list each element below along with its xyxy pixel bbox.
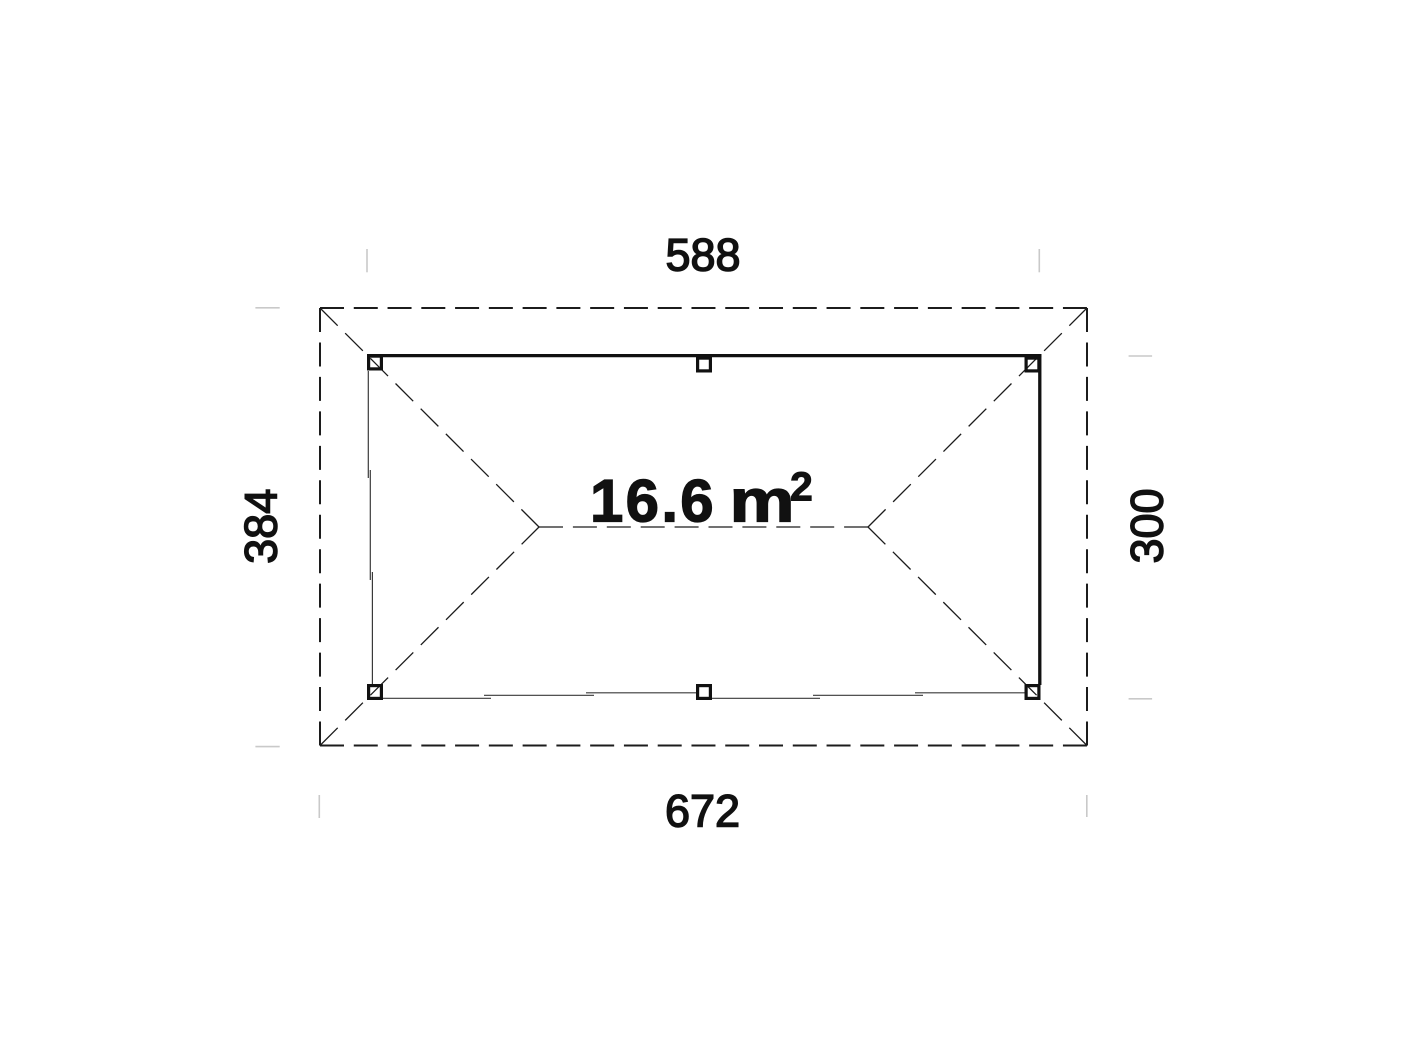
svg-text:300: 300 [1122,488,1173,563]
svg-text:384: 384 [236,489,287,564]
svg-text:m: m [730,468,795,535]
svg-text:2: 2 [790,463,813,509]
svg-text:16.6: 16.6 [590,468,716,535]
svg-text:588: 588 [665,230,740,281]
svg-text:672: 672 [665,786,740,837]
